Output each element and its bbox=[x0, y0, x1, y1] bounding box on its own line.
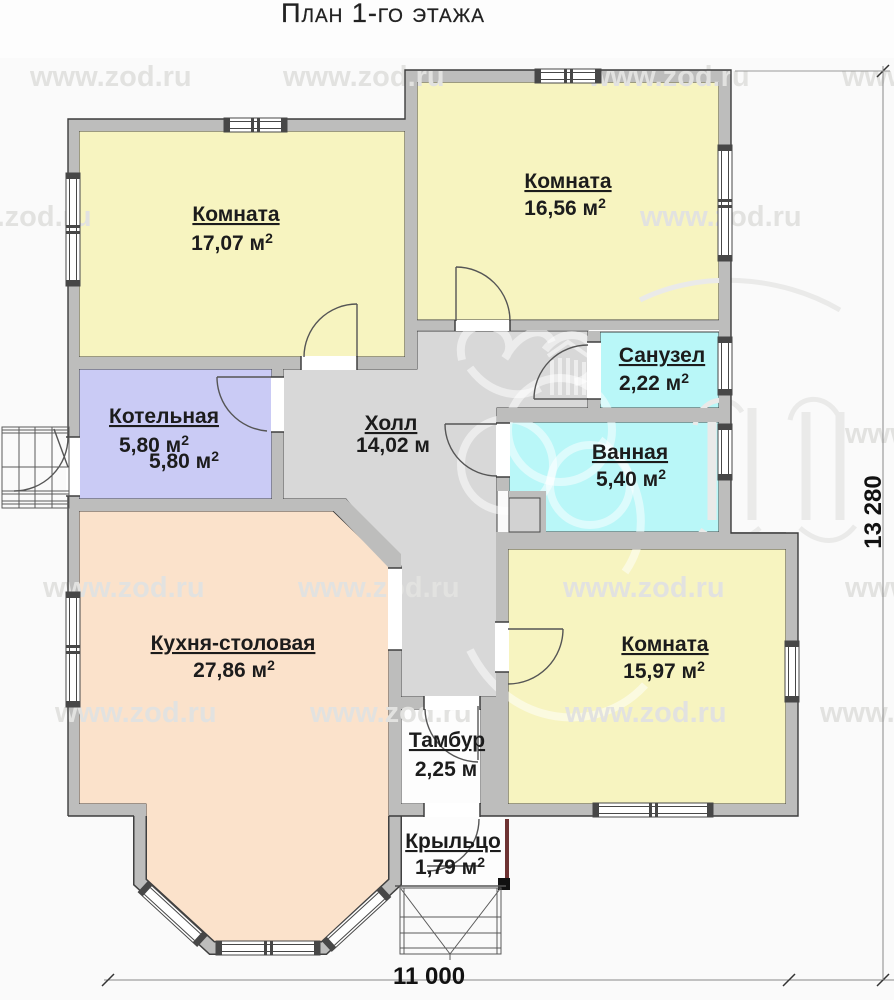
svg-text:План 1-го этажа: План 1-го этажа bbox=[281, 0, 485, 28]
svg-text:16,56 м2: 16,56 м2 bbox=[524, 195, 606, 220]
svg-text:1,79 м2: 1,79 м2 bbox=[415, 854, 485, 879]
svg-text:Комната: Комната bbox=[524, 170, 612, 193]
svg-text:17,07 м2: 17,07 м2 bbox=[191, 230, 273, 255]
svg-text:Санузел: Санузел bbox=[619, 344, 705, 367]
svg-text:www.zod.ru: www.zod.ru bbox=[564, 697, 727, 729]
svg-text:www.zod.ru: www.zod.ru bbox=[29, 61, 192, 93]
svg-text:Тамбур: Тамбур bbox=[409, 729, 485, 752]
svg-text:5,80 м2: 5,80 м2 bbox=[149, 448, 219, 473]
svg-text:13 280: 13 280 bbox=[860, 475, 887, 548]
svg-text:Котельная: Котельная bbox=[109, 405, 219, 428]
svg-text:2,25 м: 2,25 м bbox=[415, 758, 477, 781]
svg-text:Кухня-столовая: Кухня-столовая bbox=[151, 632, 316, 655]
svg-text:www.zod.ru: www.zod.ru bbox=[282, 61, 445, 93]
svg-text:Холл: Холл bbox=[365, 412, 418, 435]
svg-text:14,02 м: 14,02 м bbox=[356, 434, 430, 457]
svg-text:Комната: Комната bbox=[192, 203, 280, 226]
svg-text:www.zod.ru: www.zod.ru bbox=[844, 418, 894, 450]
svg-text:www.zod.ru: www.zod.ru bbox=[587, 61, 750, 93]
svg-text:Ванная: Ванная bbox=[592, 441, 668, 464]
svg-text:www.zod.ru: www.zod.ru bbox=[841, 61, 894, 93]
svg-text:Комната: Комната bbox=[621, 633, 709, 656]
svg-text:Крыльцо: Крыльцо bbox=[405, 830, 501, 853]
svg-text:www.zod.ru: www.zod.ru bbox=[297, 572, 460, 604]
svg-text:2,22 м2: 2,22 м2 bbox=[619, 370, 689, 395]
svg-text:www.zod.ru: www.zod.ru bbox=[562, 572, 725, 604]
svg-text:27,86 м2: 27,86 м2 bbox=[193, 657, 275, 682]
svg-text:5,40 м2: 5,40 м2 bbox=[596, 466, 666, 491]
svg-text:15,97 м2: 15,97 м2 bbox=[623, 658, 705, 683]
svg-text:www.zod.ru: www.zod.ru bbox=[844, 572, 894, 604]
svg-text:11 000: 11 000 bbox=[393, 963, 465, 990]
